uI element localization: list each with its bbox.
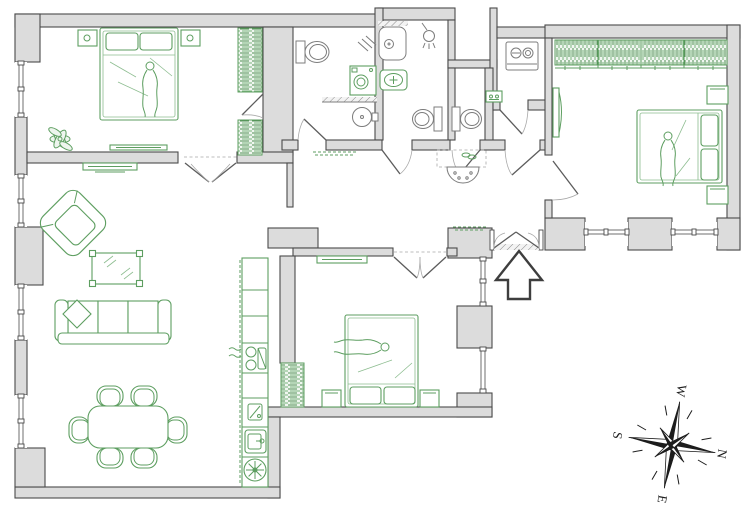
wall-west-lower: [268, 417, 280, 498]
wall-bedroom2-bottom: [268, 407, 492, 417]
shower-partition: [322, 97, 377, 102]
wall-bedroom3-top: [545, 25, 740, 38]
plant: [47, 126, 73, 152]
wardrobe: [238, 28, 262, 92]
wall-left-pier-e: [15, 448, 45, 487]
toilet: [452, 107, 482, 131]
washing-machine: [350, 66, 376, 95]
wall-bath-south-a: [282, 140, 298, 150]
washbasin-round: [353, 108, 379, 127]
double-bed-3: [637, 110, 722, 186]
pillow: [140, 33, 172, 50]
pillow: [701, 149, 718, 180]
wall-bedroom1-east: [263, 27, 293, 155]
pillow: [701, 115, 718, 146]
wall-wc-east: [485, 68, 493, 143]
toilet: [296, 41, 329, 63]
nightstand: [78, 30, 97, 46]
toilet: [413, 107, 443, 131]
window-left-4: [15, 394, 27, 448]
tv-unit: [83, 163, 137, 172]
chair: [97, 448, 123, 468]
pillow: [384, 387, 415, 404]
towel-radiator: [486, 91, 502, 102]
wardrobe: [281, 363, 304, 407]
wall-kitchen-block: [268, 228, 318, 248]
wall-bedroom3-bottom-pier2: [628, 218, 672, 250]
wall-living-bottom: [15, 487, 280, 498]
wall-bedroom2-north-b: [447, 248, 457, 256]
bedroom-1: [47, 28, 262, 155]
wall-corridor-bedroom3-a: [545, 38, 552, 155]
console-table: [437, 150, 486, 183]
door-utility: [500, 110, 528, 134]
door-bedroom2-double: [394, 252, 446, 278]
compass-label-north: N: [714, 448, 731, 460]
window-left-3: [15, 284, 27, 340]
nightstand: [181, 30, 200, 46]
sofa: [55, 300, 171, 344]
floor-plan-drawing: N E S W: [0, 0, 750, 511]
door-shower-room: [382, 150, 412, 174]
wall-left-pier-c: [15, 227, 43, 285]
dining-table: [88, 406, 168, 448]
compass-label-west: W: [673, 383, 690, 398]
wall-shower-top: [378, 8, 455, 20]
window-bedroom2-east-2: [480, 347, 486, 393]
wall-bath-south-d: [480, 140, 505, 150]
shower-glass-icon: [358, 36, 376, 51]
wall-top-west: [15, 14, 378, 27]
entrance-arrow: [496, 251, 542, 299]
pillow: [106, 33, 138, 50]
wall-bedroom1-south-a: [27, 152, 178, 163]
bathroom: [296, 36, 378, 127]
door-bedroom3: [553, 161, 578, 200]
compass-rose: N E S W: [600, 374, 740, 511]
bedroom-3: [553, 40, 728, 204]
double-bed-1: [100, 28, 178, 120]
chair: [167, 417, 187, 443]
chair: [131, 386, 157, 406]
wall-left-pier-b: [15, 117, 27, 175]
door-bathroom: [298, 119, 326, 140]
armchair: [36, 186, 110, 260]
wall-bedroom3-right: [727, 25, 740, 250]
shower-head-icon: [422, 23, 435, 49]
wall-left-pier-d: [15, 340, 27, 395]
window-left-1: [15, 61, 27, 117]
steam-icon: [229, 348, 241, 358]
wall-bath-south-c: [412, 140, 450, 150]
wardrobe: [555, 40, 727, 70]
wall-bedroom2-north-a: [293, 248, 393, 256]
utility-room: [506, 42, 538, 70]
chair: [97, 386, 123, 406]
wall-utility-top: [497, 27, 552, 38]
extractor-fan: [244, 459, 266, 481]
wall-bedroom3-bottom-pier3: [717, 218, 740, 250]
kitchen-sink: [245, 430, 266, 453]
double-bed-2: [334, 315, 418, 407]
dining-set: [69, 386, 187, 468]
kitchen: [229, 258, 268, 487]
washbasin: [380, 70, 407, 90]
window-bedroom2-east-1: [480, 257, 486, 306]
window-left-2: [15, 174, 27, 227]
bedroom-2: [281, 256, 439, 407]
door-corridor: [505, 150, 540, 175]
living-room: [36, 163, 187, 468]
radiator: [313, 152, 357, 155]
wall-left-pier-a: [15, 14, 40, 62]
wc: [452, 107, 482, 131]
door-bedroom1-living: [184, 157, 237, 182]
wall-hall-west-stub: [287, 163, 293, 207]
window-bedroom3-south-2: [671, 222, 718, 246]
compass-label-east: E: [654, 494, 670, 504]
washer-dryer: [506, 42, 538, 70]
window-bedroom3-south-1: [584, 222, 629, 246]
wall-bedroom3-bottom-pier1: [545, 218, 585, 250]
pillow: [350, 387, 381, 404]
wardrobe: [238, 120, 262, 155]
wall-corridor-bedroom3-b: [545, 200, 552, 218]
floor-plan: N E S W: [0, 0, 750, 511]
wall-bedroom2-east-pier: [457, 306, 492, 348]
chair: [69, 417, 89, 443]
door-bedroom1-closet: [242, 94, 263, 118]
door-entry: [490, 230, 543, 250]
wall-bedroom2-west: [280, 256, 295, 363]
wall-bath-south-b: [326, 140, 382, 150]
chair: [131, 448, 157, 468]
radiator: [110, 145, 167, 150]
tv-unit: [317, 256, 367, 263]
compass-label-south: S: [610, 431, 626, 441]
coffee-table: [90, 251, 143, 287]
tv-unit: [553, 88, 562, 137]
shower-room: [378, 21, 442, 131]
